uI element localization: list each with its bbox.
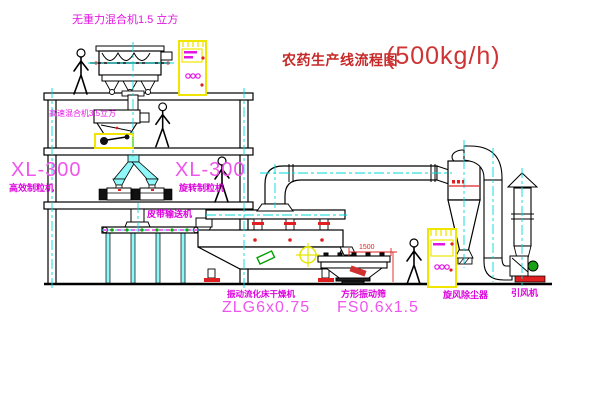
label-fan: 引风机 [511,289,538,298]
label-gravity-mixer: 无重力混合机1.5 立方 [72,15,178,26]
flow-diagram-canvas: 无重力混合机1.5 立方 农药生产线流程图 (500kg/h) 高速混合机3.5… [0,0,600,403]
label-granulator-left: 高效制粒机 [9,184,54,193]
person-figure [407,239,421,284]
belt-conveyor [102,227,199,283]
y-chute [114,155,158,179]
label-xl300-left: XL-300 [11,160,82,180]
diagram-title-capacity: (500kg/h) [386,44,501,69]
label-xl300-right: XL-300 [175,160,246,180]
diagram-title: 农药生产线流程图 [282,53,398,67]
label-belt-conveyor: 皮带输送机 [147,210,192,219]
person-figure [156,103,170,147]
label-cyclone: 旋风除尘器 [443,291,488,300]
label-sieve-model: FS0.6x1.5 [337,300,419,316]
gravity-free-mixer [90,46,172,113]
dimension-sieve-length: 1500 [359,244,375,251]
control-cabinet-lower [428,229,456,287]
granulators [99,179,172,200]
label-high-speed-mixer: 高速混合机3.5立方 [49,110,116,118]
person-figure [74,49,88,94]
control-cabinet-upper [179,41,206,95]
exhaust-duct [257,164,449,211]
induced-draft-fan [508,173,545,282]
label-dryer-model: ZLG6x0.75 [222,300,310,316]
label-granulator-right: 旋转制粒机 [179,184,224,193]
label-sieve-name: 方形振动筛 [341,290,386,299]
label-dryer-name: 振动流化床干燥机 [227,290,295,299]
